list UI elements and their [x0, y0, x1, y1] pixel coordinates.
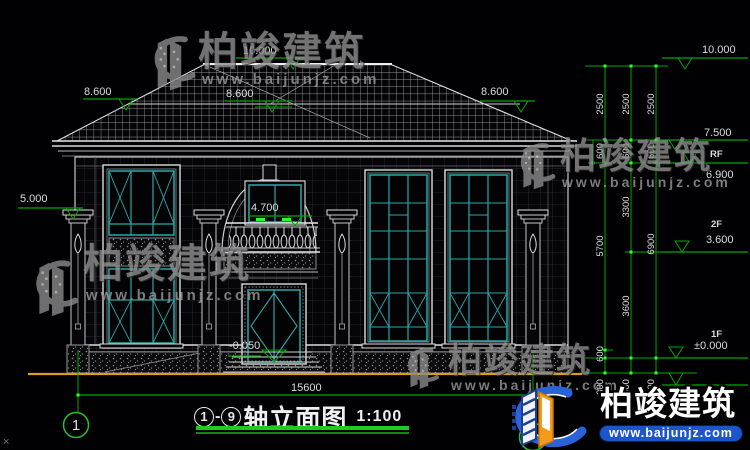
corner-mark: × [3, 436, 9, 448]
dim-5700: 5700 [595, 235, 606, 256]
eave-cornice [52, 141, 577, 156]
dim-3300: 3300 [621, 196, 632, 217]
planter-band [224, 253, 316, 269]
axis-number-1: 1 [72, 417, 80, 434]
floor-label-2f: 2F [711, 219, 722, 230]
balustrade [224, 223, 320, 252]
dimensions-right: 2500 2500 2500 600 600 600 3300 5700 690… [585, 44, 748, 395]
brand-logo-icon [492, 381, 600, 450]
level-10000-right: 10.000 [702, 44, 736, 56]
level-8600-left: 8.600 [84, 86, 112, 98]
floor-label-1f: 1F [711, 329, 722, 340]
dim-2500-3: 2500 [646, 93, 657, 114]
arch-keystone [263, 165, 276, 180]
level-4700: 4.700 [251, 202, 279, 214]
dim-2500-1: 2500 [595, 93, 606, 114]
level-5000: 5.000 [20, 193, 48, 205]
dim-600-4: 600 [595, 346, 606, 362]
dim-600-2: 600 [621, 143, 632, 159]
level-6900: 6.900 [706, 169, 734, 181]
left-window [100, 165, 183, 348]
dim-3600: 3600 [621, 295, 632, 316]
dim-6900: 6900 [646, 233, 657, 254]
level-zero: ±0.000 [694, 340, 728, 352]
sash-arrow [256, 218, 265, 221]
title-underline-thin [196, 432, 409, 434]
dim-600-3: 600 [646, 143, 657, 159]
level-8600-right: 8.600 [481, 86, 509, 98]
dim-2500-2: 2500 [621, 93, 632, 114]
right-window-1 [362, 170, 435, 348]
level-8600-mid: 8.600 [226, 88, 254, 100]
cad-elevation-screenshot: 8.600 10.000 8.600 8.600 5.000 4.700 -0.… [0, 0, 750, 450]
brand-logo: 柏竣建筑 www.baijunjz.com [492, 381, 750, 450]
dim-600-1: 600 [595, 143, 606, 159]
window-spandrel [109, 238, 174, 266]
title-axis-start: 1 [194, 407, 214, 427]
brand-logo-url: www.baijunjz.com [600, 426, 742, 441]
level-3600: 3.600 [706, 234, 734, 246]
title-dash: - [215, 408, 220, 426]
roof [52, 64, 577, 156]
level-7500: 7.500 [704, 127, 732, 139]
dim-15600: 15600 [291, 382, 322, 394]
level-10000-top: 10.000 [243, 45, 277, 57]
title-underline [196, 426, 409, 430]
title-scale: 1:100 [356, 408, 402, 426]
floor-label-rf: RF [710, 149, 723, 160]
level-minus-0050: -0.050 [229, 340, 260, 352]
title-axis-end: 9 [221, 407, 241, 427]
sash-arrow [282, 218, 291, 221]
brand-logo-text: 柏竣建筑 [600, 387, 736, 420]
plinth-base [75, 352, 568, 373]
right-window-2 [442, 170, 515, 348]
